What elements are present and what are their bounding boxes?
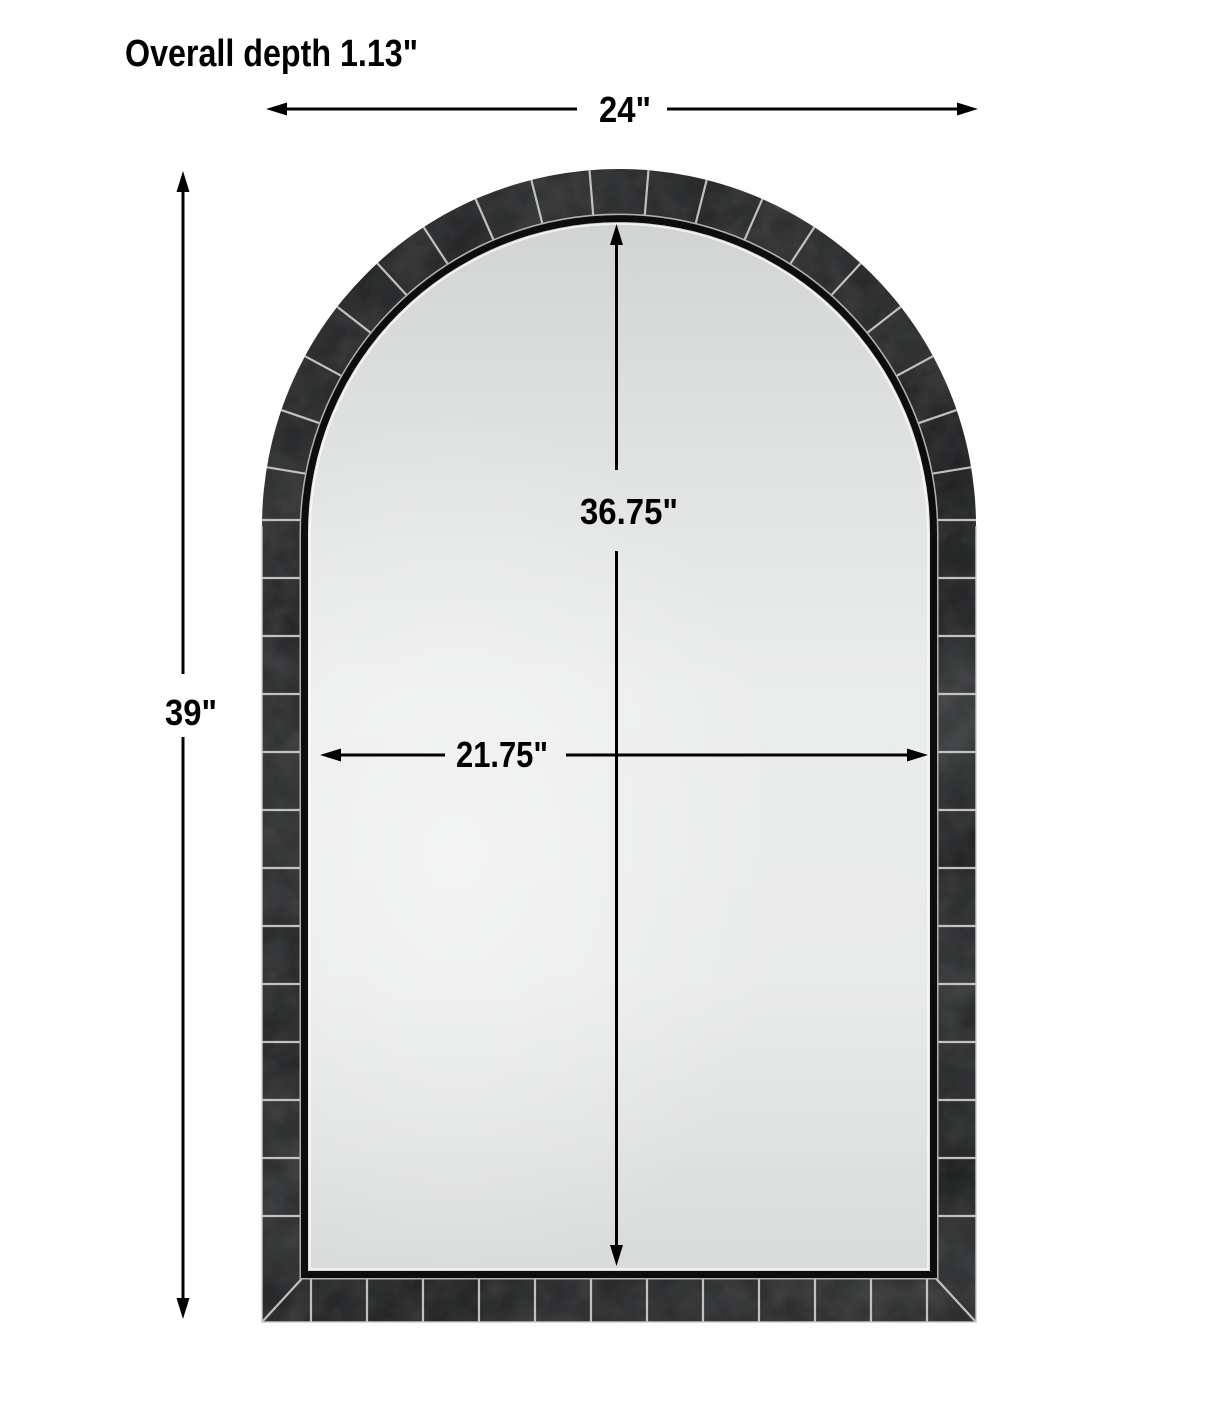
- svg-text:36.75": 36.75": [580, 491, 678, 532]
- svg-text:21.75": 21.75": [456, 734, 548, 775]
- svg-text:39": 39": [165, 692, 217, 733]
- svg-text:24": 24": [599, 89, 651, 130]
- svg-text:Overall depth 1.13": Overall depth 1.13": [125, 33, 418, 75]
